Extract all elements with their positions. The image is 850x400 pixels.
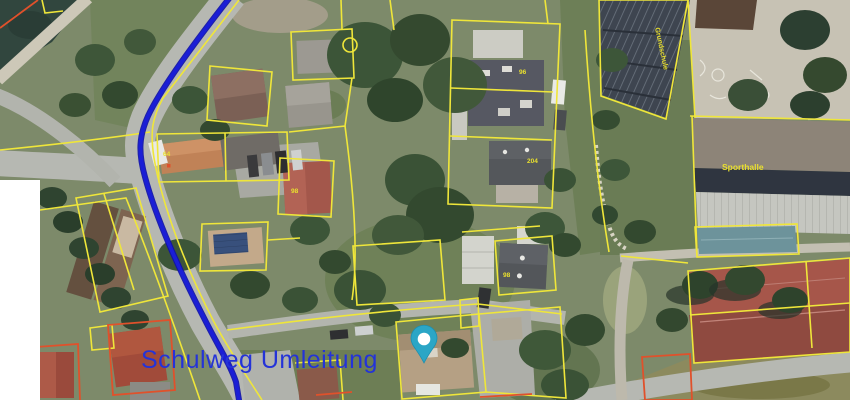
parcel-number: 98 [503,272,511,279]
parcel-number: 204 [527,158,538,165]
sporthalle-roof-upper [692,118,850,172]
parcel-number: 64 [163,151,171,158]
sporthalle-shadow-band [694,168,850,196]
west-branch-road [0,163,138,171]
pin-center-dot [418,333,431,346]
parcel-number: 96 [519,69,527,76]
map-edge-blank [0,180,40,400]
sporthalle-label: Sporthalle [722,162,764,172]
route-note-label: Schulweg Umleitung [141,346,378,374]
plaza-sandpit [695,0,757,30]
map-canvas[interactable]: Sporthalle Grundschule 64 96 204 98 98 S… [0,0,850,400]
parcel-number: 98 [291,188,299,195]
